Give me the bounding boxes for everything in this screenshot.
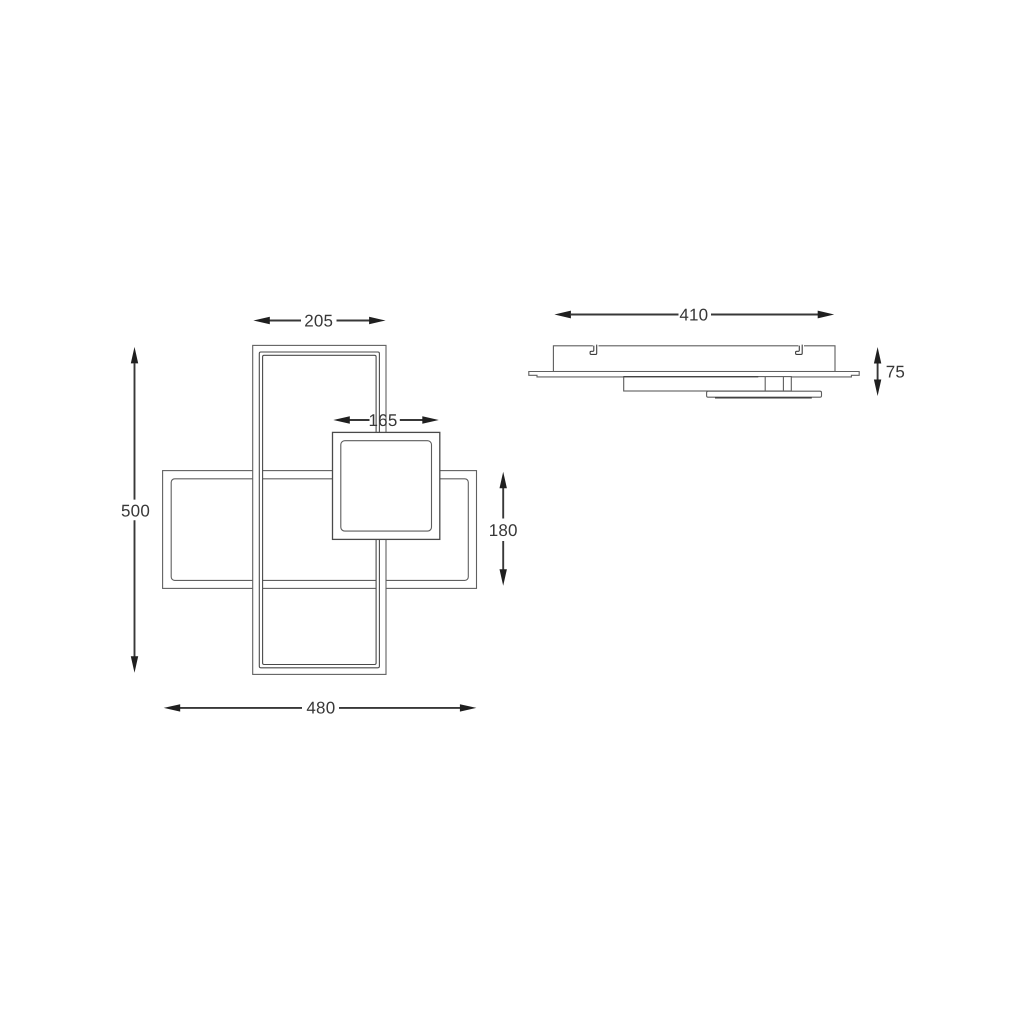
- svg-text:480: 480: [306, 699, 335, 718]
- svg-text:410: 410: [679, 306, 708, 325]
- svg-text:180: 180: [489, 521, 518, 540]
- svg-text:165: 165: [369, 411, 398, 430]
- svg-text:500: 500: [121, 501, 150, 520]
- svg-text:205: 205: [304, 312, 333, 331]
- svg-text:75: 75: [886, 362, 905, 381]
